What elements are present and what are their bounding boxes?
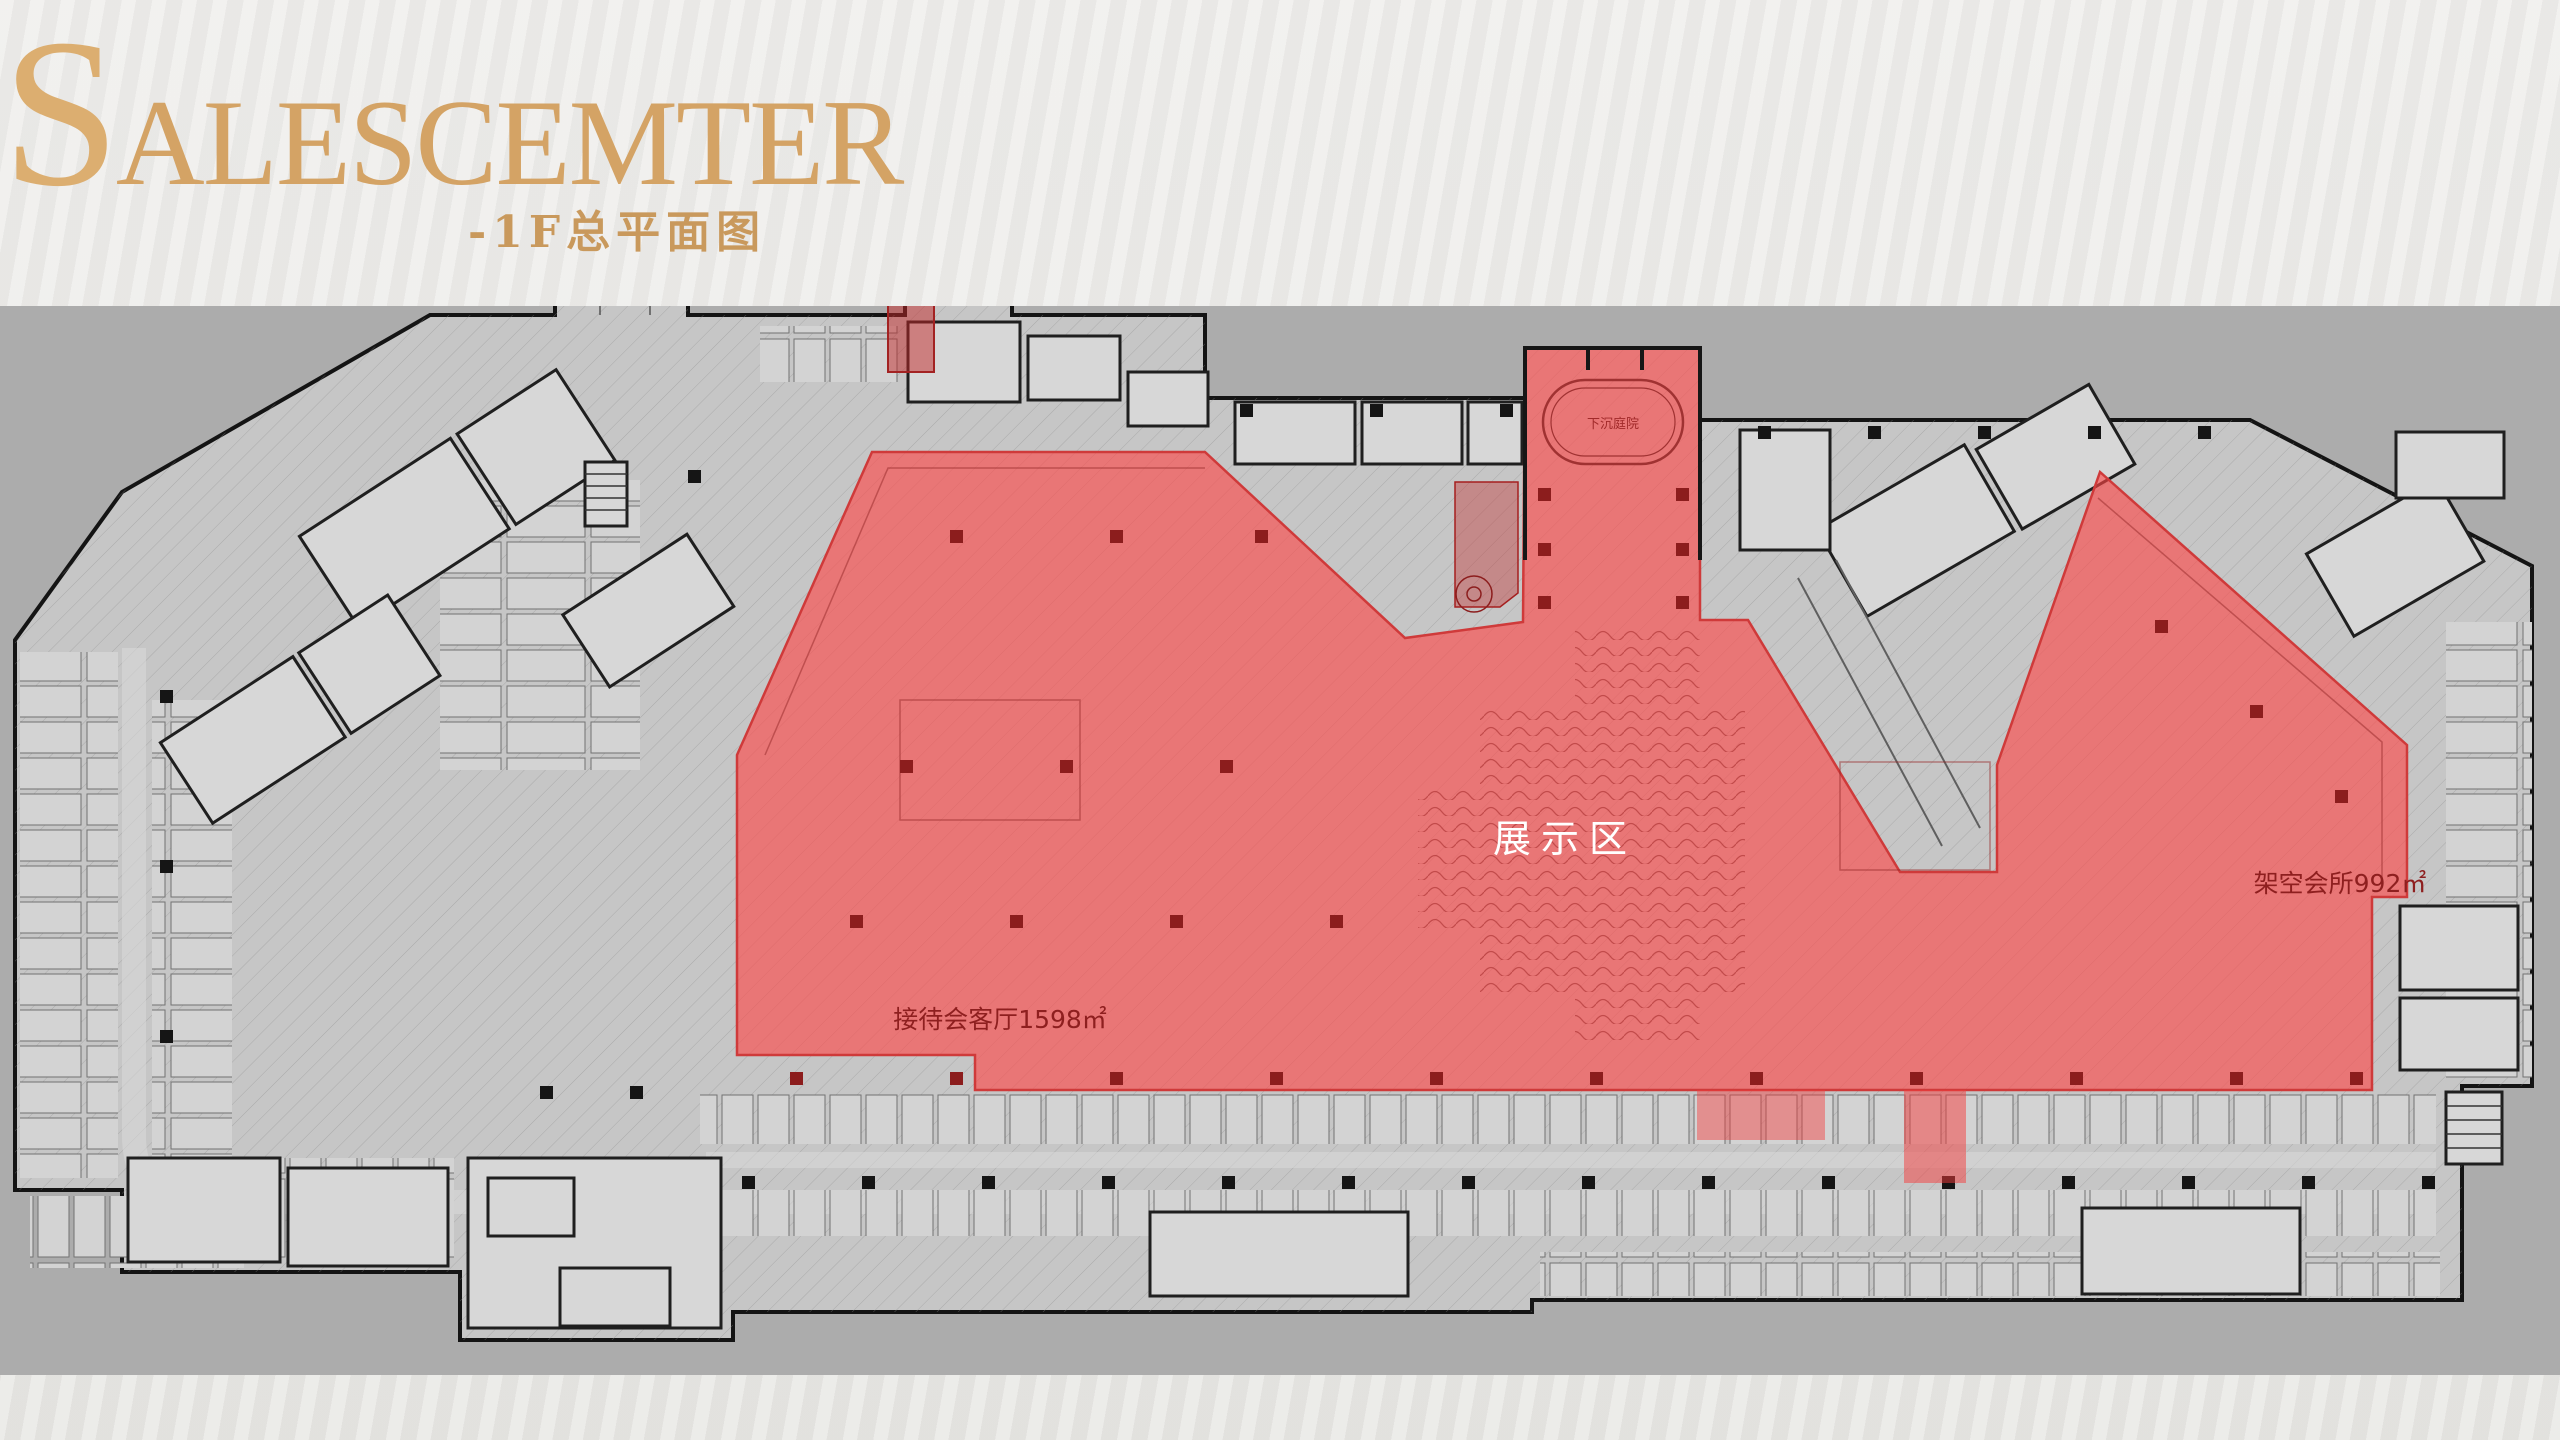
floor-plan-svg: 展示区 接待会客厅1598㎡ 架空会所992㎡ 下沉庭院	[0, 306, 2560, 1375]
highlight-parking-patch-right	[1904, 1090, 1966, 1183]
floor-plan-band: 展示区 接待会客厅1598㎡ 架空会所992㎡ 下沉庭院	[0, 306, 2560, 1375]
page-title: SALESCEMTER	[2, 26, 902, 204]
highlight-parking-patch-left	[1697, 1090, 1825, 1140]
sales-center-slide: { "header": { "title_initial": "S", "tit…	[0, 0, 2560, 1440]
highlight-room-top	[888, 306, 934, 372]
elevated-clubhouse-label: 架空会所992㎡	[2254, 869, 2427, 898]
reception-hall-label: 接待会客厅1598㎡	[893, 1005, 1107, 1034]
page-subtitle: -1F总平面图	[468, 196, 766, 260]
page-title-rest: ALESCEMTER	[116, 81, 902, 204]
page-title-initial: S	[2, 26, 116, 200]
highlight-dark-room	[1455, 482, 1518, 607]
sunken-courtyard-label: 下沉庭院	[1587, 416, 1639, 432]
display-area-label: 展示区	[1493, 817, 1637, 861]
